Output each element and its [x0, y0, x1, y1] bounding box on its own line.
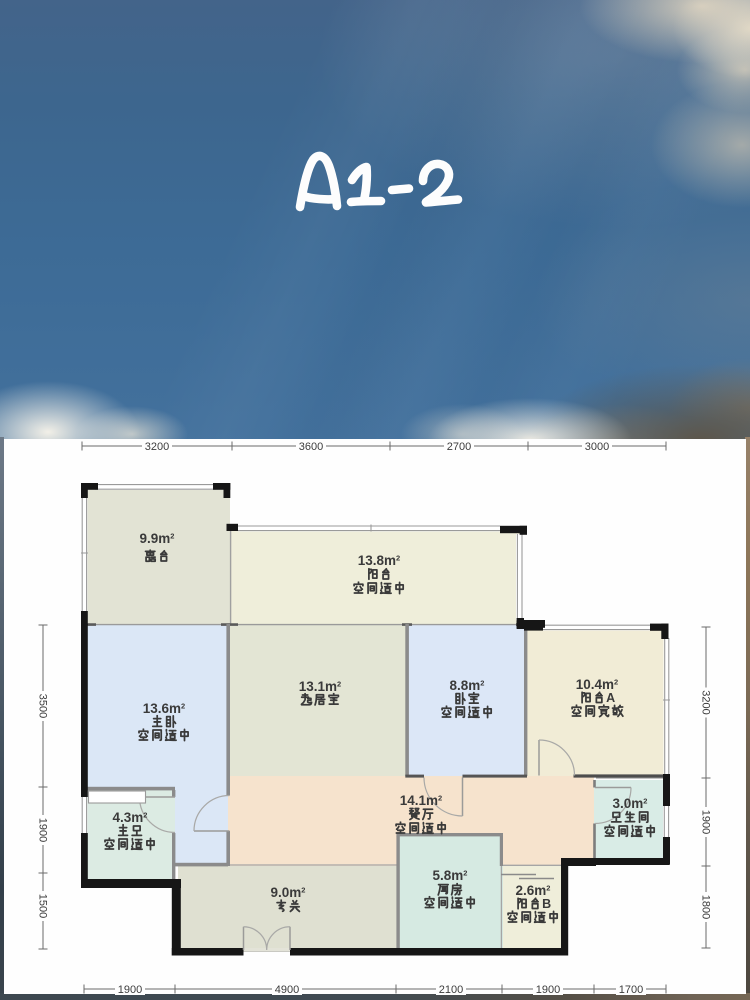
svg-text:13.1m2: 13.1m2	[299, 679, 341, 694]
svg-text:3500: 3500	[37, 694, 49, 718]
svg-text:2100: 2100	[439, 984, 463, 996]
svg-text:13.8m2: 13.8m2	[358, 553, 400, 568]
svg-text:4900: 4900	[275, 984, 299, 996]
svg-text:9.9m2: 9.9m2	[140, 531, 175, 546]
svg-text:A: A	[606, 691, 615, 705]
svg-text:B: B	[542, 897, 551, 911]
svg-text:3200: 3200	[700, 690, 712, 714]
svg-text:2.6m2: 2.6m2	[516, 883, 551, 898]
svg-text:1700: 1700	[619, 984, 643, 996]
svg-text:4.3m2: 4.3m2	[113, 810, 148, 825]
svg-text:9.0m2: 9.0m2	[271, 885, 306, 900]
svg-text:13.6m2: 13.6m2	[143, 701, 185, 716]
svg-text:1900: 1900	[37, 818, 49, 842]
svg-text:2700: 2700	[447, 441, 471, 453]
svg-text:10.4m2: 10.4m2	[576, 677, 618, 692]
svg-text:5.8m2: 5.8m2	[433, 868, 468, 883]
svg-text:1900: 1900	[700, 810, 712, 834]
svg-text:3000: 3000	[585, 441, 609, 453]
svg-text:1900: 1900	[118, 984, 142, 996]
svg-text:8.8m2: 8.8m2	[450, 678, 485, 693]
svg-text:3.0m2: 3.0m2	[613, 796, 648, 811]
svg-text:14.1m2: 14.1m2	[400, 793, 442, 808]
svg-text:1900: 1900	[536, 984, 560, 996]
svg-text:3200: 3200	[145, 441, 169, 453]
svg-text:3600: 3600	[299, 441, 323, 453]
svg-text:1800: 1800	[700, 895, 712, 919]
svg-text:1500: 1500	[37, 894, 49, 918]
